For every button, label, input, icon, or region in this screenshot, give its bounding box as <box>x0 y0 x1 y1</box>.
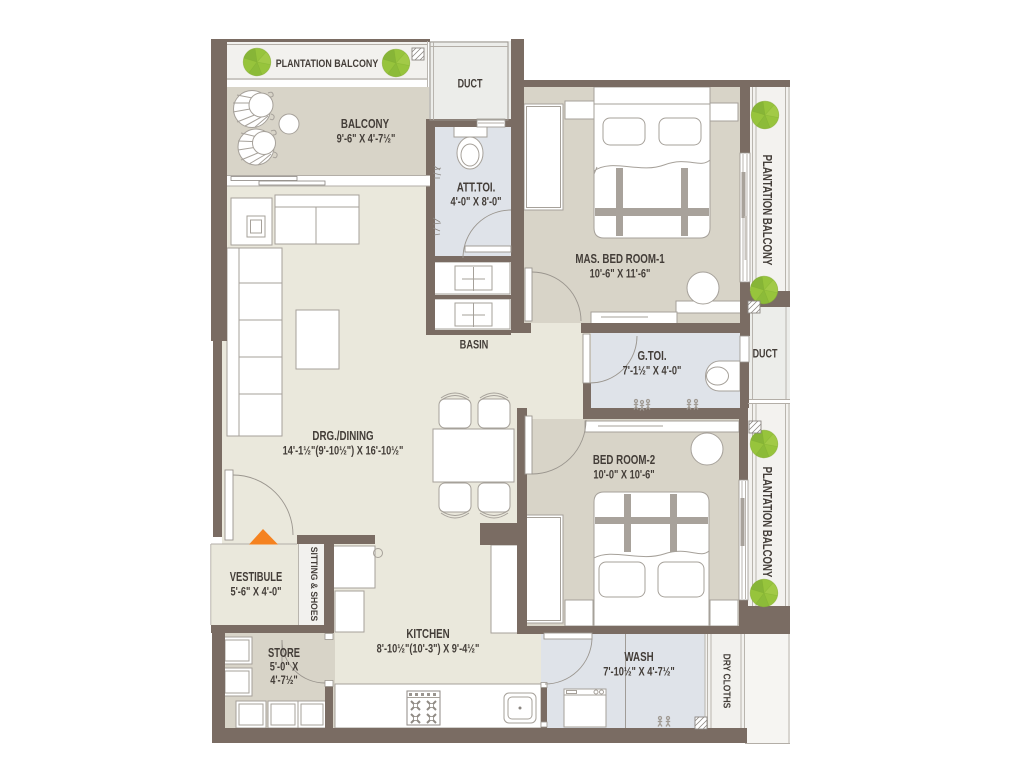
svg-text:DRG./DINING: DRG./DINING <box>312 430 373 444</box>
svg-text:7'-1½" X 4'-0": 7'-1½" X 4'-0" <box>623 364 682 377</box>
svg-text:BALCONY: BALCONY <box>341 118 389 132</box>
svg-text:G.TOI.: G.TOI. <box>637 350 666 364</box>
svg-text:KITCHEN: KITCHEN <box>406 628 449 642</box>
svg-text:8'-10½"(10'-3") X 9'-4½": 8'-10½"(10'-3") X 9'-4½" <box>377 642 480 655</box>
svg-text:5'-6" X 4'-0": 5'-6" X 4'-0" <box>230 585 281 598</box>
svg-text:9'-6" X 4'-7½": 9'-6" X 4'-7½" <box>337 132 396 145</box>
svg-text:4'-7½": 4'-7½" <box>270 674 298 687</box>
svg-text:ATT.TOI.: ATT.TOI. <box>457 181 496 195</box>
svg-text:DUCT: DUCT <box>753 349 778 361</box>
svg-text:DUCT: DUCT <box>458 79 483 91</box>
svg-text:STORE: STORE <box>268 647 300 661</box>
svg-text:BED ROOM-2: BED ROOM-2 <box>593 454 655 468</box>
svg-text:14'-1½"(9'-10½") X 16'-10½": 14'-1½"(9'-10½") X 16'-10½" <box>283 444 404 457</box>
svg-text:5'-0" X: 5'-0" X <box>270 660 299 673</box>
svg-text:PLANTATION BALCONY: PLANTATION BALCONY <box>760 467 773 578</box>
svg-text:10'-6" X 11'-6": 10'-6" X 11'-6" <box>590 267 651 280</box>
svg-text:VESTIBULE: VESTIBULE <box>230 571 283 585</box>
svg-text:BASIN: BASIN <box>460 338 489 351</box>
svg-text:10'-0" X 10'-6": 10'-0" X 10'-6" <box>593 468 654 481</box>
svg-text:7'-10½" X 4'-7½": 7'-10½" X 4'-7½" <box>603 665 675 678</box>
svg-text:PLANTATION BALCONY: PLANTATION BALCONY <box>760 155 773 266</box>
svg-text:DRY CLOTHS: DRY CLOTHS <box>721 654 732 709</box>
svg-text:4'-0" X 8'-0": 4'-0" X 8'-0" <box>450 195 501 208</box>
svg-text:PLANTATION BALCONY: PLANTATION BALCONY <box>276 58 379 70</box>
svg-text:SITTING & SHOES: SITTING & SHOES <box>309 547 320 621</box>
svg-text:WASH: WASH <box>624 651 653 665</box>
svg-text:MAS. BED ROOM-1: MAS. BED ROOM-1 <box>575 253 665 267</box>
